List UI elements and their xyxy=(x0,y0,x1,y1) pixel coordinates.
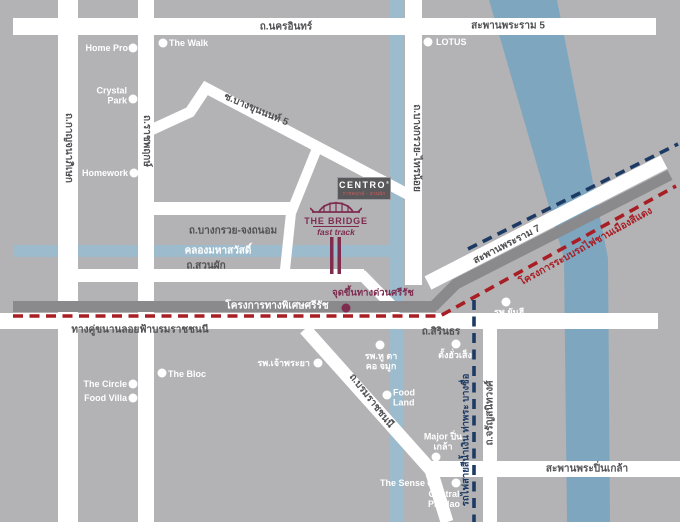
road-label-borom-parallel: ทางคู่ขนานลอยฟ้าบรมราชชนนี xyxy=(71,324,208,336)
road-nakhon-in xyxy=(13,18,656,35)
poi-dot-the-bloc xyxy=(158,369,167,378)
poi-label-the-walk: The Walk xyxy=(169,38,208,48)
poi-dot-crystal-park xyxy=(129,95,138,104)
poi-label-major-pinklao: Major ปิ่นเกล้า xyxy=(420,432,466,453)
road-label-rama5: สะพานพระราม 5 xyxy=(471,20,545,32)
poi-dot-lotus xyxy=(424,38,433,47)
expressway-entrance-dot xyxy=(342,304,351,313)
centro-logo-name: CENTRO® xyxy=(339,181,389,190)
poi-label-yanhee-hospital: รพ.ยันฮี xyxy=(494,307,524,317)
poi-dot-home-pro xyxy=(129,44,138,53)
canal-label-mahasawat: คลองมหาสวัสดิ์ xyxy=(185,245,252,257)
expressway-label-sirat: โครงการทางพิเศษศรีรัช xyxy=(225,300,328,312)
poi-dot-homework xyxy=(130,169,139,178)
poi-label-tang-hua-seng: ตั้งฮั่วเส็ง xyxy=(438,350,472,360)
poi-dot-food-land xyxy=(383,391,392,400)
poi-dot-yanhee-hospital xyxy=(502,298,511,307)
poi-dot-the-circle xyxy=(129,380,138,389)
registered-mark: ® xyxy=(386,180,389,185)
road-label-ratchaphruek: ถ.ราชพฤกษ์ xyxy=(140,115,152,167)
poi-label-the-bloc: The Bloc xyxy=(168,369,206,379)
road-label-phra-pinklao: สะพานพระปิ่นเกล้า xyxy=(546,463,628,475)
poi-dot-ent-hospital xyxy=(376,341,385,350)
poi-label-homework: Homework xyxy=(82,168,128,178)
road-label-bangkruai-sainoi: ถ.บางกรวย-ไทรน้อย xyxy=(410,104,422,192)
poi-label-lotus: LOTUS xyxy=(436,37,467,47)
road-ratchaphruek xyxy=(138,0,154,522)
map-geometry xyxy=(0,0,680,522)
poi-label-ent-hospital: รพ.หู ตา คอ จมูก xyxy=(359,351,403,372)
poi-label-food-land: Food Land xyxy=(393,388,423,409)
the-bridge-label: THE BRIDGE xyxy=(304,216,368,226)
bridge-icon xyxy=(310,197,362,215)
water-layer xyxy=(13,0,610,522)
poi-dot-central-pinklao xyxy=(452,479,461,488)
poi-label-home-pro: Home Pro xyxy=(85,43,128,53)
poi-label-crystal-park: Crystal Park xyxy=(85,86,127,107)
poi-dot-the-sense xyxy=(428,479,437,488)
map: ถ.นครอินทร์ สะพานพระราม 5 ถ.กาญจนาภิเษก … xyxy=(0,0,680,522)
poi-label-food-villa: Food Villa xyxy=(84,393,127,403)
poi-dot-chaophraya-hospital xyxy=(314,359,323,368)
road-kanchanaphisek xyxy=(58,0,78,522)
poi-dot-the-walk xyxy=(159,39,168,48)
poi-dot-food-villa xyxy=(129,394,138,403)
fast-track-lane xyxy=(338,237,342,274)
road-label-kanchanaphisek: ถ.กาญจนาภิเษก xyxy=(62,113,74,183)
poi-dot-tang-hua-seng xyxy=(452,340,461,349)
centro-logo-tagline: ราชพฤกษ์ - สวนผัก xyxy=(342,192,385,197)
road-label-suan-phak: ถ.สวนผัก xyxy=(186,260,225,272)
poi-label-the-circle: The Circle xyxy=(83,379,127,389)
road-label-charansanitwong: ถ.จรัญสนิทวงศ์ xyxy=(484,381,496,446)
road-bangkruai-chongthanom xyxy=(150,202,294,215)
fast-track-lane xyxy=(330,237,334,274)
poi-label-chaophraya-hospital: รพ.เจ้าพระยา xyxy=(257,358,310,368)
road-label-bangkruai-chongthanom: ถ.บางกรวย-จงถนอม xyxy=(189,225,277,237)
fast-track-label: fast track xyxy=(317,228,355,238)
road-label-sirindhorn: ถ.สิรินธร xyxy=(422,326,461,338)
poi-label-the-sense: The Sense xyxy=(380,478,425,488)
road-label-nakhon-in: ถ.นครอินทร์ xyxy=(260,21,313,33)
expressway-entrance-label: จุดขึ้นทางด่วนศรีรัช xyxy=(332,289,414,300)
poi-label-central-pinklao: Central Pinklao xyxy=(421,489,467,510)
poi-dot-major-pinklao xyxy=(432,453,441,462)
